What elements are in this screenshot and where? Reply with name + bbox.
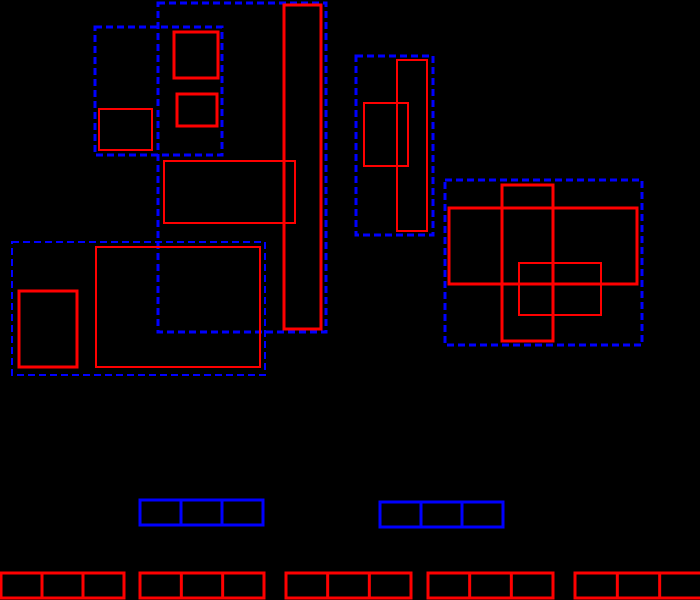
blue-dashed-box [158,3,326,332]
blue-segmented-bar [380,502,503,527]
blue-dashed-box [12,242,265,375]
blue-segmented-bar [140,500,263,525]
blue-dashed-box [356,56,433,235]
red-box [364,103,408,166]
red-segmented-bar [286,573,411,598]
red-segmented-bar [575,573,700,598]
red-box [19,291,77,367]
red-box [177,94,217,126]
red-segmented-bar [428,573,553,598]
red-box [519,263,601,315]
red-box [96,247,260,367]
red-segmented-bar [140,573,264,598]
red-box [397,60,427,231]
red-box [164,161,295,223]
red-box [449,208,637,284]
red-box [284,5,321,329]
diagram-canvas [0,0,700,600]
red-segmented-bar [1,573,124,598]
boxes-scene [0,0,700,600]
red-box [174,32,218,78]
red-box [99,109,152,150]
